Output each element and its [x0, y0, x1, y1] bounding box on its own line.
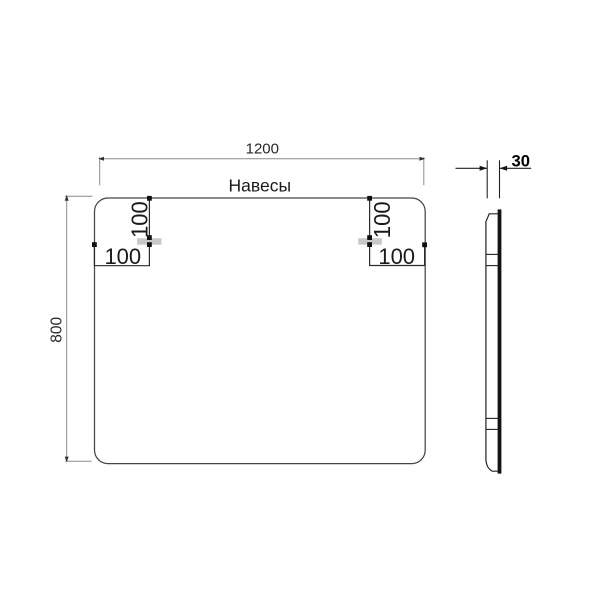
svg-text:100: 100	[126, 201, 152, 238]
svg-text:100: 100	[104, 244, 141, 269]
svg-text:100: 100	[378, 244, 415, 269]
svg-text:1200: 1200	[246, 141, 279, 158]
svg-text:100: 100	[369, 201, 395, 238]
svg-text:Навесы: Навесы	[229, 175, 292, 195]
svg-text:800: 800	[48, 316, 65, 342]
svg-text:30: 30	[512, 153, 531, 171]
